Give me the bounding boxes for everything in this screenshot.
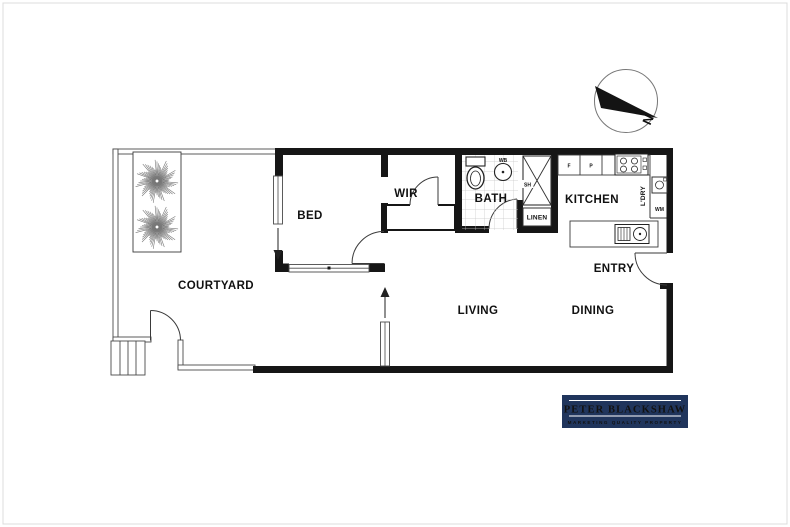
slide-arrow-up-icon (381, 287, 390, 297)
courtyard-steps (111, 341, 145, 375)
courtyard-gate-door (151, 311, 181, 341)
island-bench (570, 221, 658, 247)
laundry-label: L'DRY (640, 186, 647, 206)
linen-cupboard: LINEN (523, 208, 551, 226)
logo-tagline: MARKETING QUALITY PROPERTY (568, 420, 683, 425)
wir-robe-wall (386, 203, 455, 231)
svg-text:F: F (567, 164, 570, 170)
entry-label: ENTRY (594, 263, 635, 275)
shower-icon: SH (522, 156, 552, 205)
bed-label: BED (297, 210, 322, 222)
svg-text:SH: SH (524, 183, 531, 189)
courtyard-label: COURTYARD (178, 280, 254, 292)
laundry-tub-icon (652, 177, 667, 193)
floorplan-canvas: WB SH LINEN F P L'DRY W (0, 0, 790, 527)
washing-machine-label: WM (655, 207, 664, 213)
logo-title: PETER BLACKSHAW (564, 405, 686, 416)
living-label: LIVING (458, 305, 499, 317)
living-sliding-door (381, 287, 390, 366)
laundry-nook: L'DRY WM (640, 175, 667, 218)
bed-door (352, 232, 384, 264)
agency-logo: PETER BLACKSHAW MARKETING QUALITY PROPER… (562, 395, 688, 428)
bath-label: BATH (475, 193, 508, 205)
bed-window (289, 265, 369, 273)
toilet-icon (466, 157, 485, 189)
entry-door (635, 253, 667, 285)
floorplan-svg: WB SH LINEN F P L'DRY W (0, 0, 790, 527)
bed-sliding-door (274, 176, 283, 260)
image-border (3, 3, 787, 524)
svg-text:LINEN: LINEN (527, 215, 548, 222)
dining-label: DINING (572, 305, 615, 317)
cooktop-icon (615, 154, 648, 175)
kitchen-label: KITCHEN (565, 194, 619, 206)
north-arrow-icon: N (595, 70, 659, 133)
wir-label: WIR (394, 188, 418, 200)
